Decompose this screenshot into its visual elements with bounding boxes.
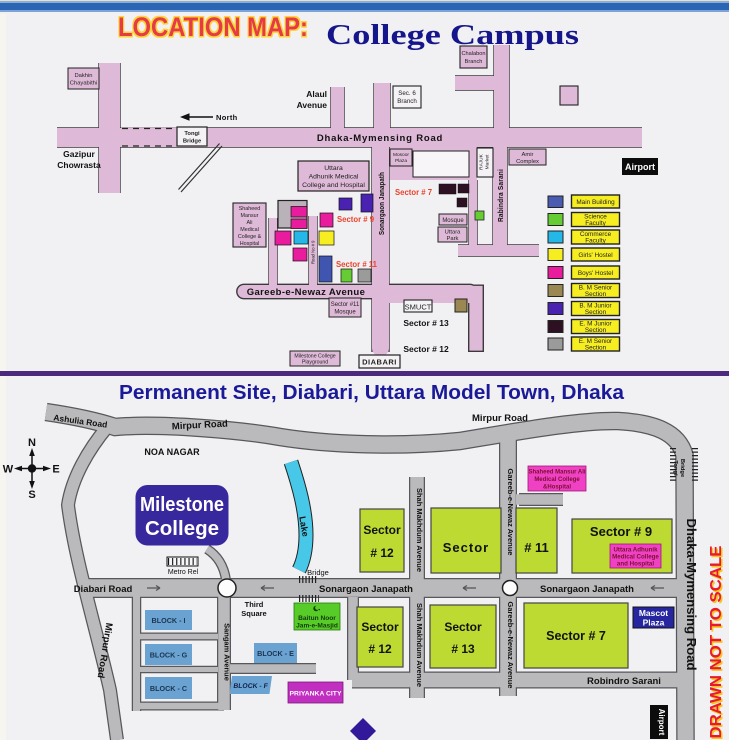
svg-text:Mascot: Mascot <box>639 608 668 618</box>
svg-text:Section: Section <box>585 309 607 316</box>
svg-text:Chalabon: Chalabon <box>462 51 486 57</box>
svg-text:Medical College: Medical College <box>534 477 580 483</box>
svg-text:Avenue: Avenue <box>297 100 328 110</box>
svg-text:Dakhin: Dakhin <box>74 73 92 79</box>
svg-text:Bridge: Bridge <box>679 459 685 478</box>
svg-text:Airport: Airport <box>657 709 666 736</box>
svg-text:Ali: Ali <box>247 220 253 226</box>
svg-text:SMUCT: SMUCT <box>405 303 432 312</box>
svg-text:Gareeb-e-Newaz Avenue: Gareeb-e-Newaz Avenue <box>506 469 515 556</box>
svg-text:Baitun Noor: Baitun Noor <box>298 615 336 622</box>
svg-text:Road No # 9: Road No # 9 <box>311 240 316 264</box>
svg-text:Boys' Hostel: Boys' Hostel <box>578 270 613 277</box>
svg-text:Jam-e-Masjid: Jam-e-Masjid <box>296 623 338 630</box>
svg-text:# 11: # 11 <box>524 540 549 555</box>
svg-text:Gareeb-e-Newaz Avenue: Gareeb-e-Newaz Avenue <box>506 602 515 689</box>
svg-text:Square: Square <box>241 609 266 618</box>
svg-text:North: North <box>216 113 238 122</box>
svg-text:Girls' Hostel: Girls' Hostel <box>578 252 612 259</box>
svg-text:College Campus: College Campus <box>326 20 579 51</box>
svg-text:DRAWN NOT TO SCALE: DRAWN NOT TO SCALE <box>708 546 725 739</box>
svg-text:Diabari Road: Diabari Road <box>74 584 133 595</box>
svg-text:College &: College & <box>238 234 262 240</box>
svg-text:Tongi: Tongi <box>672 460 678 476</box>
svg-text:Sector: Sector <box>443 540 489 555</box>
svg-text:Bridge: Bridge <box>183 139 202 145</box>
svg-text:Shaheed: Shaheed <box>239 206 261 212</box>
svg-text:Faculty: Faculty <box>585 238 606 245</box>
svg-text:Rabindra Sarani: Rabindra Sarani <box>498 169 505 222</box>
svg-text:Uttara Adhunik: Uttara Adhunik <box>613 547 658 554</box>
svg-text:Main Building: Main Building <box>576 199 615 206</box>
svg-text:Permanent Site, Diabari, Uttar: Permanent Site, Diabari, Uttara Model To… <box>119 381 625 404</box>
svg-text:Plaza: Plaza <box>643 618 665 628</box>
svg-text:Sector: Sector <box>361 620 399 634</box>
svg-text:DIABARI: DIABARI <box>362 358 397 367</box>
svg-text:PRIYANKA CITY: PRIYANKA CITY <box>290 691 342 698</box>
svg-text:Uttara: Uttara <box>324 165 343 172</box>
svg-text:Park: Park <box>447 236 459 242</box>
svg-text:Uttara: Uttara <box>445 230 462 236</box>
svg-text:Sangam Avenue: Sangam Avenue <box>223 623 232 681</box>
svg-text:Shah Makhdum Avenue: Shah Makhdum Avenue <box>415 488 424 572</box>
svg-text:Shah Makhdum Avenue: Shah Makhdum Avenue <box>415 603 424 687</box>
svg-text:Alaul: Alaul <box>306 89 327 99</box>
svg-text:and Hospital: and Hospital <box>617 561 654 568</box>
svg-text:Sonargaon Janapath: Sonargaon Janapath <box>379 172 386 235</box>
svg-text:Adhunik Medical: Adhunik Medical <box>309 174 359 181</box>
svg-text:# 12: # 12 <box>368 642 392 656</box>
svg-text:Third: Third <box>245 600 264 609</box>
svg-text:Dhaka-Mymensing Road: Dhaka-Mymensing Road <box>317 133 443 144</box>
svg-text:Shaheed Mansur Ali: Shaheed Mansur Ali <box>528 470 585 476</box>
svg-text:Mosoor: Mosoor <box>393 152 409 158</box>
svg-text:Bridge: Bridge <box>307 568 329 577</box>
svg-text:Robindro Sarani: Robindro Sarani <box>587 676 661 687</box>
svg-text:Section: Section <box>585 291 607 298</box>
svg-text:# 13: # 13 <box>451 642 475 656</box>
svg-text:Gareeb-e-Newaz Avenue: Gareeb-e-Newaz Avenue <box>247 287 366 298</box>
svg-text:Faculty: Faculty <box>585 220 606 227</box>
svg-text:Amir: Amir <box>522 152 534 158</box>
svg-text:Medical College: Medical College <box>612 554 659 561</box>
svg-text:Mirpur Road: Mirpur Road <box>472 413 528 424</box>
svg-text:BLOCK - I: BLOCK - I <box>152 616 186 625</box>
svg-text:BLOCK - G: BLOCK - G <box>150 651 188 660</box>
svg-text:NOA NAGAR: NOA NAGAR <box>144 447 200 457</box>
svg-text:Sector # 9: Sector # 9 <box>337 214 374 224</box>
svg-text:Mansur: Mansur <box>241 213 259 219</box>
svg-text:N: N <box>28 437 36 449</box>
svg-text:Branch: Branch <box>465 59 483 65</box>
svg-text:Complex: Complex <box>516 159 539 165</box>
svg-text:Section: Section <box>585 345 607 352</box>
svg-text:Branch: Branch <box>397 98 417 105</box>
svg-text:College: College <box>145 517 219 540</box>
svg-text:BLOCK - F: BLOCK - F <box>233 683 268 690</box>
svg-text:# 12: # 12 <box>370 546 394 560</box>
svg-text:&Hospital: &Hospital <box>543 485 571 491</box>
svg-text:Metro Rel: Metro Rel <box>168 569 199 576</box>
svg-text:Tongi: Tongi <box>184 131 200 137</box>
svg-text:Sector # 7: Sector # 7 <box>546 629 606 643</box>
svg-text:Chayabithi: Chayabithi <box>70 81 97 87</box>
svg-text:College and Hospital: College and Hospital <box>302 182 365 189</box>
svg-text:Medical: Medical <box>240 227 259 233</box>
svg-text:Sector # 7: Sector # 7 <box>395 187 432 197</box>
svg-text:LOCATION MAP:: LOCATION MAP: <box>118 12 308 42</box>
svg-text:Sec. 6: Sec. 6 <box>398 90 416 97</box>
svg-text:Sector #11: Sector #11 <box>331 302 360 308</box>
svg-text:E: E <box>52 464 59 476</box>
svg-text:Airport: Airport <box>625 162 655 172</box>
svg-text:W: W <box>3 464 14 476</box>
svg-text:RAJUK: RAJUK <box>479 153 485 170</box>
svg-text:Mosque: Mosque <box>442 218 464 224</box>
svg-text:Sector: Sector <box>444 620 482 634</box>
svg-text:S: S <box>28 489 35 501</box>
svg-text:Sector: Sector <box>363 523 401 537</box>
svg-text:Mosque: Mosque <box>334 310 356 316</box>
svg-text:Market: Market <box>485 154 491 169</box>
svg-text:Plaza: Plaza <box>395 158 407 164</box>
svg-text:Hospital: Hospital <box>240 241 259 247</box>
svg-text:BLOCK - E: BLOCK - E <box>257 649 294 658</box>
svg-text:Sector # 13: Sector # 13 <box>403 318 449 328</box>
svg-text:BLOCK - C: BLOCK - C <box>150 684 187 693</box>
svg-text:Sonargaon Janapath: Sonargaon Janapath <box>319 584 413 595</box>
svg-text:Sector # 9: Sector # 9 <box>590 524 652 539</box>
svg-text:Dhaka-Mymensing Road: Dhaka-Mymensing Road <box>684 519 698 671</box>
svg-text:Gazipur: Gazipur <box>63 149 95 159</box>
svg-text:Playground: Playground <box>302 360 328 366</box>
svg-text:Chowrasta: Chowrasta <box>57 160 101 170</box>
svg-text:Section: Section <box>585 327 607 334</box>
svg-text:Sector # 11: Sector # 11 <box>336 259 377 269</box>
svg-text:Sonargaon Janapath: Sonargaon Janapath <box>540 584 634 595</box>
svg-text:Sector # 12: Sector # 12 <box>403 344 449 354</box>
svg-text:Milestone: Milestone <box>140 493 224 516</box>
